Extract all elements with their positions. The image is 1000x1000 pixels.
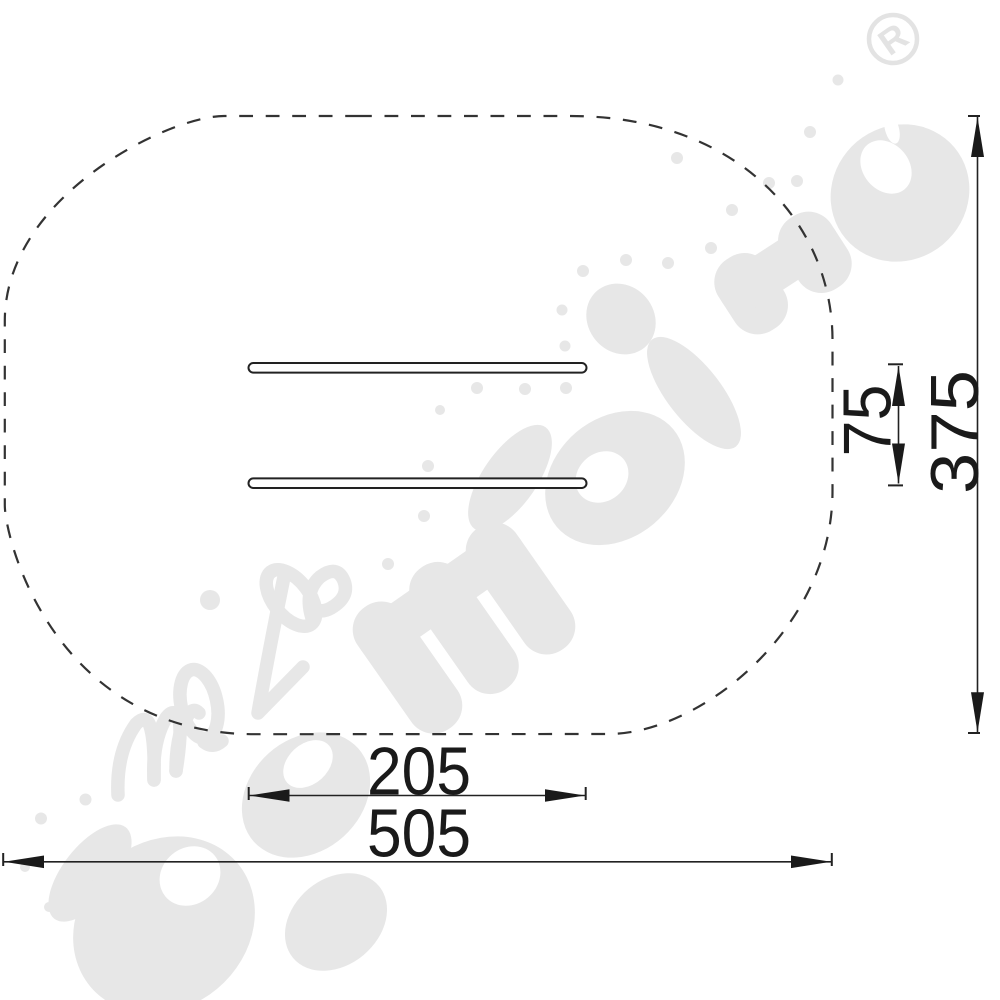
svg-text:375: 375: [917, 370, 993, 494]
svg-text:505: 505: [367, 796, 471, 872]
svg-text:75: 75: [830, 385, 906, 457]
